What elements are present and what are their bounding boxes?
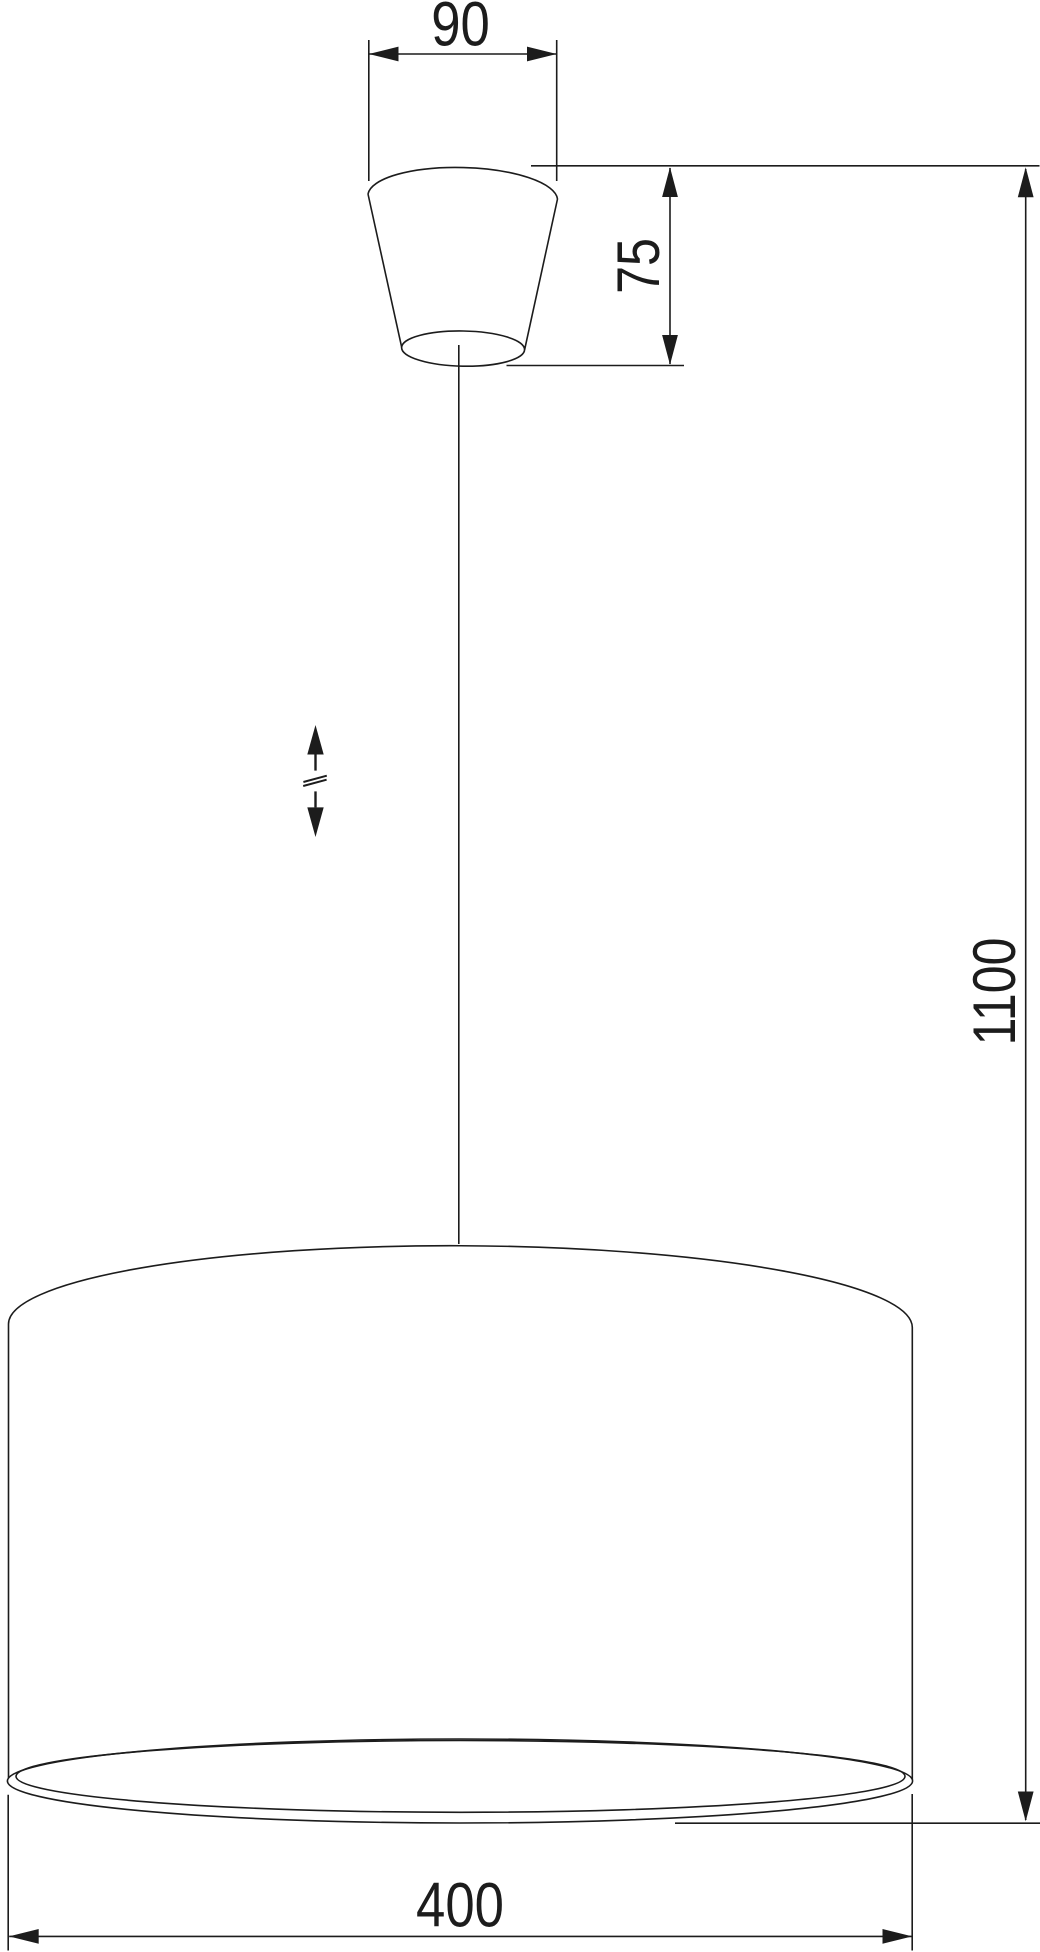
svg-text:75: 75 (605, 238, 672, 294)
svg-text:400: 400 (416, 1870, 504, 1941)
svg-text:90: 90 (431, 0, 490, 59)
svg-text:1100: 1100 (961, 938, 1028, 1046)
